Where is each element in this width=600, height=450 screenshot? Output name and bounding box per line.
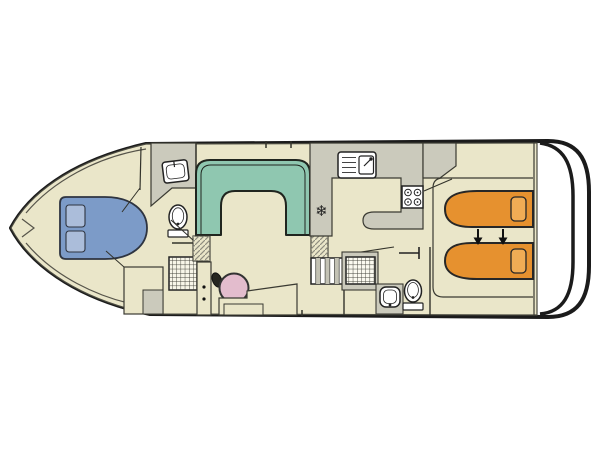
- closet-shelf: [143, 290, 163, 314]
- fridge-icon: ❄: [315, 202, 328, 220]
- washbasin-icon: [162, 159, 189, 183]
- floor-plan-drawing: ❄: [0, 0, 600, 450]
- shower-icon: [342, 252, 378, 290]
- side-door: [197, 262, 211, 315]
- washbasin-icon: [376, 284, 403, 314]
- kitchen-sink-icon: [338, 152, 376, 178]
- boat-floor-plan: ❄: [0, 0, 600, 450]
- bed-pillow: [511, 197, 526, 221]
- bed-pillow: [511, 249, 526, 273]
- shower-icon: [169, 257, 197, 290]
- bed-pillow: [66, 231, 85, 252]
- stove-icon: [402, 186, 423, 208]
- helm-step: [224, 304, 263, 315]
- sliding-door-right: [311, 234, 328, 259]
- sliding-door-left: [193, 236, 210, 261]
- stairs-icon: [311, 258, 344, 284]
- bed-pillow: [66, 205, 85, 227]
- toilet-icon: [403, 280, 423, 310]
